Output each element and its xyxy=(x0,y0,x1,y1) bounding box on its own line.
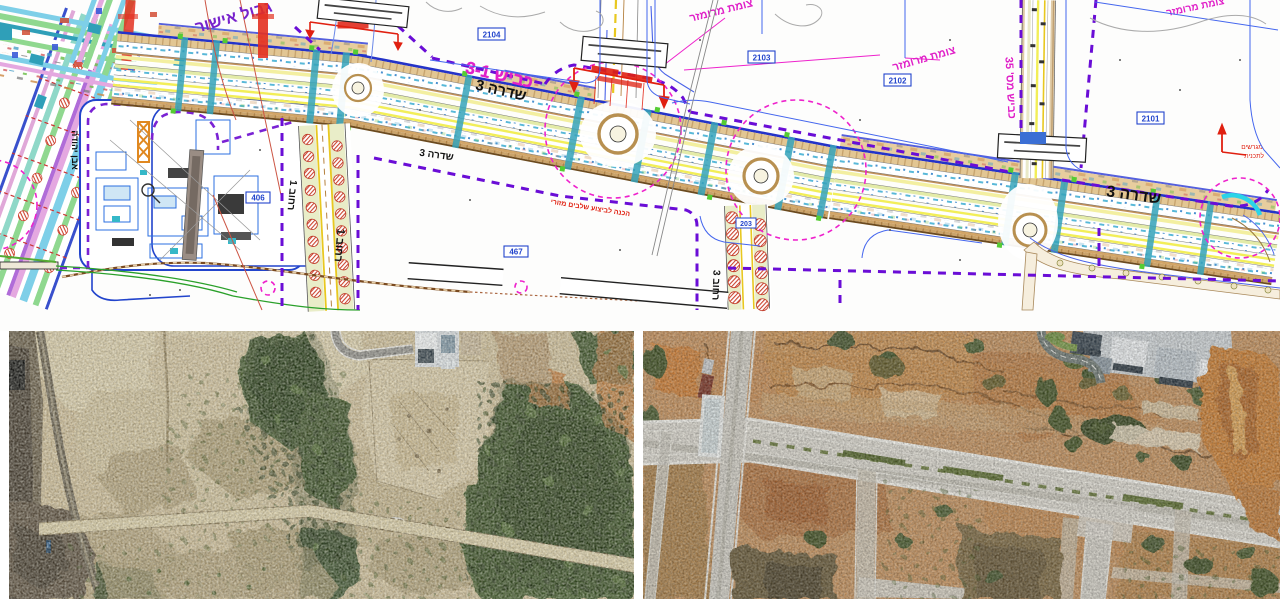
svg-text:רחוב 3: רחוב 3 xyxy=(709,270,721,301)
svg-text:467: 467 xyxy=(509,248,523,257)
svg-text:אבן יהודה: אבן יהודה xyxy=(70,130,80,170)
svg-text:406: 406 xyxy=(251,194,265,203)
svg-text:2101: 2101 xyxy=(1142,115,1160,124)
svg-text:203: 203 xyxy=(740,221,752,228)
svg-text:2104: 2104 xyxy=(483,31,501,40)
svg-text:2102: 2102 xyxy=(889,77,907,86)
svg-text:2103: 2103 xyxy=(753,54,771,63)
svg-text:לתכנית: לתכנית xyxy=(1244,152,1264,160)
svg-text:מגרשים: מגרשים xyxy=(1241,144,1262,151)
